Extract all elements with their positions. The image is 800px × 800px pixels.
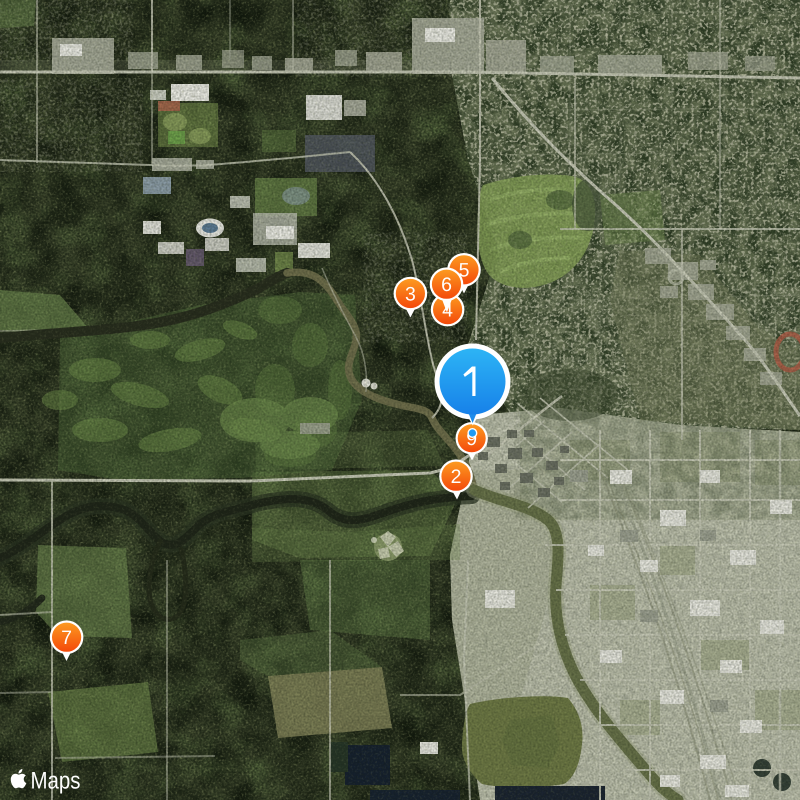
svg-text:6: 6 (441, 274, 452, 296)
svg-text:3: 3 (405, 283, 416, 305)
svg-text:Maps: Maps (31, 768, 81, 795)
svg-text:2: 2 (451, 466, 462, 488)
svg-text:7: 7 (61, 627, 72, 649)
